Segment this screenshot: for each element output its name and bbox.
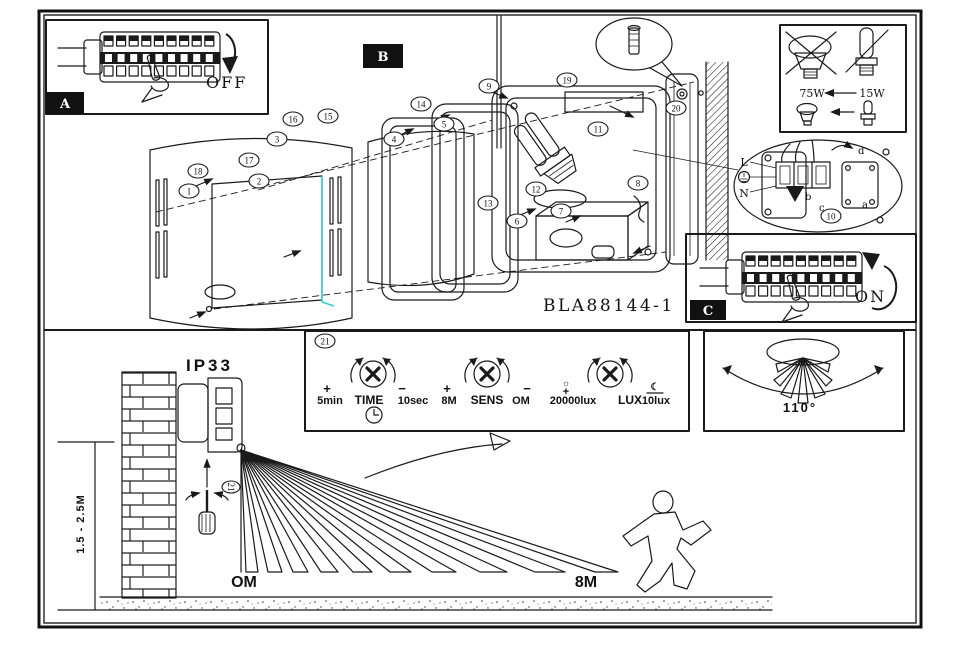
forbidden-tube-bulb-icon <box>846 28 888 75</box>
svg-text:13: 13 <box>484 199 494 209</box>
part-callout: 3 <box>267 132 287 146</box>
part-callout: 13 <box>478 196 498 210</box>
wiring-detail: L N d a b c <box>734 140 902 232</box>
step-a-badge-label: A <box>59 97 71 112</box>
angle-panel: 110° <box>704 331 904 431</box>
svg-text:3: 3 <box>275 135 280 145</box>
walking-person-icon <box>623 491 711 592</box>
glass-holder-frame <box>432 104 518 292</box>
svg-text:2: 2 <box>257 177 262 187</box>
term-a-label: a <box>862 200 868 211</box>
svg-text:6: 6 <box>515 217 520 227</box>
settings-callout-label: 21 <box>321 337 330 347</box>
time-plus: + <box>323 381 331 396</box>
lux-name: LUX <box>618 393 642 407</box>
range-near-label: OM <box>231 574 257 591</box>
svg-text:19: 19 <box>563 76 573 86</box>
svg-text:9: 9 <box>487 82 492 92</box>
vent-grille-icon <box>565 92 643 112</box>
svg-text:4: 4 <box>392 135 397 145</box>
svg-text:7: 7 <box>559 207 564 217</box>
sens-minus: − <box>523 381 531 396</box>
neutral-label: N <box>739 187 749 200</box>
svg-text:15: 15 <box>324 112 334 122</box>
svg-text:16: 16 <box>289 115 299 125</box>
part-callout: 5 <box>434 117 454 131</box>
svg-text:17: 17 <box>245 156 255 166</box>
time-min-label: 5min <box>317 395 343 407</box>
wall-anchor-callout <box>596 18 703 95</box>
brick-wall <box>122 372 176 598</box>
svg-text:18: 18 <box>194 167 204 177</box>
part-callout: 20 <box>666 101 686 115</box>
lux-dial[interactable] <box>588 358 632 387</box>
svg-text:12: 12 <box>532 185 541 195</box>
part-callout: 18 <box>188 164 208 178</box>
tool-callout-label: 21 <box>226 483 236 492</box>
sens-dial[interactable] <box>465 358 509 387</box>
part-callout: 9 <box>479 79 499 93</box>
on-label: ON <box>855 287 886 306</box>
detection-beams <box>241 450 618 572</box>
sens-min-label: OM <box>512 395 530 407</box>
ip-rating-label: IP33 <box>186 356 233 375</box>
step-b-badge-label: B <box>378 50 389 65</box>
part-callout: 16 <box>283 112 303 126</box>
instruction-sheet: OFF A B <box>0 0 960 647</box>
replace-arrow2-icon <box>830 108 840 116</box>
part-callout: 11 <box>588 122 608 136</box>
old-wattage: 75W <box>799 87 825 100</box>
moon-icon: ☾ <box>651 382 660 393</box>
cover-oval-opening <box>205 285 235 299</box>
mounted-lamp <box>178 378 245 452</box>
sens-name: SENS <box>471 393 504 407</box>
angle-arc <box>723 368 883 394</box>
svg-text:1: 1 <box>187 187 192 197</box>
wall-section <box>706 62 728 260</box>
sens-max-label: 8M <box>441 395 456 407</box>
diagram-canvas: OFF A B <box>0 0 960 647</box>
accent-highlight-line <box>322 176 334 306</box>
svg-text:20: 20 <box>672 104 682 114</box>
time-dial[interactable] <box>351 358 395 387</box>
svg-text:11: 11 <box>594 125 603 135</box>
off-label: OFF <box>206 73 247 92</box>
small-energy-bulb-icon <box>861 101 875 125</box>
live-label: L <box>740 156 748 169</box>
angle-value: 110° <box>783 400 817 415</box>
bulb-warning-box: 75W 15W <box>780 25 906 132</box>
rotate-d-arrow-icon <box>832 145 852 150</box>
height-dimension: 1.5 - 2.5M <box>58 442 114 610</box>
screwdriver-icon: 21 <box>186 460 240 534</box>
arc-arrow-left-icon <box>723 365 732 375</box>
clock-icon <box>366 407 382 423</box>
panel-off: OFF A <box>46 20 268 114</box>
height-value: 1.5 - 2.5M <box>75 494 87 554</box>
sensor-module <box>842 162 878 208</box>
earth-icon <box>739 172 750 183</box>
ground-strip <box>58 597 772 610</box>
lux-min-label: 10lux <box>642 395 671 407</box>
part-callout: 12 <box>526 182 546 196</box>
terminal-strip-icon <box>58 32 220 82</box>
step-c-badge-label: C <box>703 304 713 319</box>
step-b-badge: B <box>363 44 403 68</box>
arc-arrow-right-icon <box>874 365 883 375</box>
part-callout: 1 <box>179 184 199 198</box>
lux-max-label: 20000lux <box>550 395 597 407</box>
part-callout: 6 <box>507 214 527 228</box>
part-callout: 4 <box>384 132 404 146</box>
settings-panel: 21 + 5min TIME − 10sec + 8M SENS − OM ☼ … <box>305 331 689 431</box>
forbidden-reflector-bulb-icon <box>786 32 836 78</box>
part-callout: 8 <box>628 176 648 190</box>
glass-diffuser <box>368 131 474 285</box>
part-callout: 15 <box>318 109 338 123</box>
small-reflector-bulb-icon <box>797 104 817 126</box>
part-callout: 19 <box>557 73 577 87</box>
svg-text:14: 14 <box>417 100 427 110</box>
term-d-label: d <box>858 146 865 157</box>
part-callout: 7 <box>551 204 571 218</box>
time-max-label: 10sec <box>398 395 429 407</box>
model-number: BLA88144-1 <box>543 296 675 316</box>
time-name: TIME <box>355 393 384 407</box>
new-wattage: 15W <box>859 87 885 100</box>
sweep-arrow-icon <box>365 433 510 478</box>
term-b-label: b <box>805 192 811 203</box>
range-far-label: 8M <box>575 574 597 591</box>
svg-text:10: 10 <box>827 212 837 222</box>
svg-text:8: 8 <box>636 179 641 189</box>
sens-plus: + <box>443 381 451 396</box>
part-callout: 2 <box>249 174 269 188</box>
photocell-icon <box>592 246 614 258</box>
part-callout: 14 <box>411 97 431 111</box>
part-callout: 17 <box>239 153 259 167</box>
term-c-label: c <box>819 203 825 214</box>
svg-text:5: 5 <box>442 120 447 130</box>
insert-arrow-icon <box>786 186 804 202</box>
replace-arrow-icon <box>824 89 834 97</box>
wall-plug-icon <box>628 26 640 54</box>
time-minus: − <box>398 381 406 396</box>
